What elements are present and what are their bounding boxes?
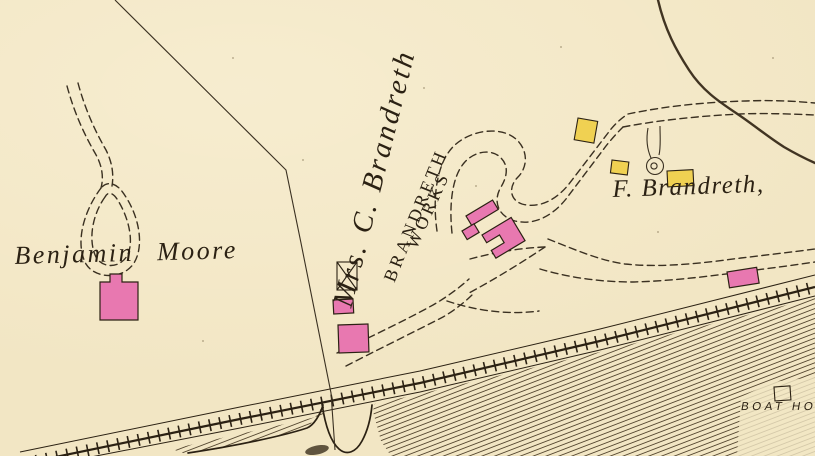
speck [772,57,774,59]
speck [302,159,304,161]
speck [232,57,234,59]
map-canvas: Benjamin Moore Mrs. C. Brandreth BRANDRE… [0,0,815,456]
works-fence-lower [469,247,545,293]
east-road-lower [623,114,815,127]
turnaround-neck-left [647,128,651,158]
property-boundary-line [115,0,335,450]
works-switchback-road-1 [435,114,628,231]
speck [560,46,562,48]
moore-driveway-right [78,83,113,186]
turnaround-neck-right [659,126,660,155]
speck [202,340,204,342]
moore-house [100,274,138,320]
shore-rocks [304,443,329,456]
works-building-long [466,200,498,225]
label-f-brandreth: F. Brandreth, [612,171,765,204]
speck [657,231,659,233]
shore-road-upper [548,239,815,265]
brandreth-yellow-building-2 [610,160,628,175]
stream-line [658,0,815,163]
roads [67,83,815,366]
speck [475,185,477,187]
speck [423,87,425,89]
works-fence-south [447,301,539,313]
label-benjamin-moore: Benjamin Moore [14,235,238,271]
works-building-small [462,224,479,240]
cove-inlet [320,400,374,453]
turnaround [647,126,664,175]
mrs-brandreth-building-large [338,324,369,353]
works-building-c-shape [482,217,525,258]
east-road-upper [628,101,815,114]
turnaround-well [651,163,657,169]
turnaround-circle [647,158,664,175]
brandreth-yellow-building-1 [574,118,598,143]
label-boat-house: BOAT HO [740,401,815,413]
railroad-side-building [727,267,759,287]
river-bank-hachure [172,298,815,456]
moore-driveway-left [67,86,102,188]
